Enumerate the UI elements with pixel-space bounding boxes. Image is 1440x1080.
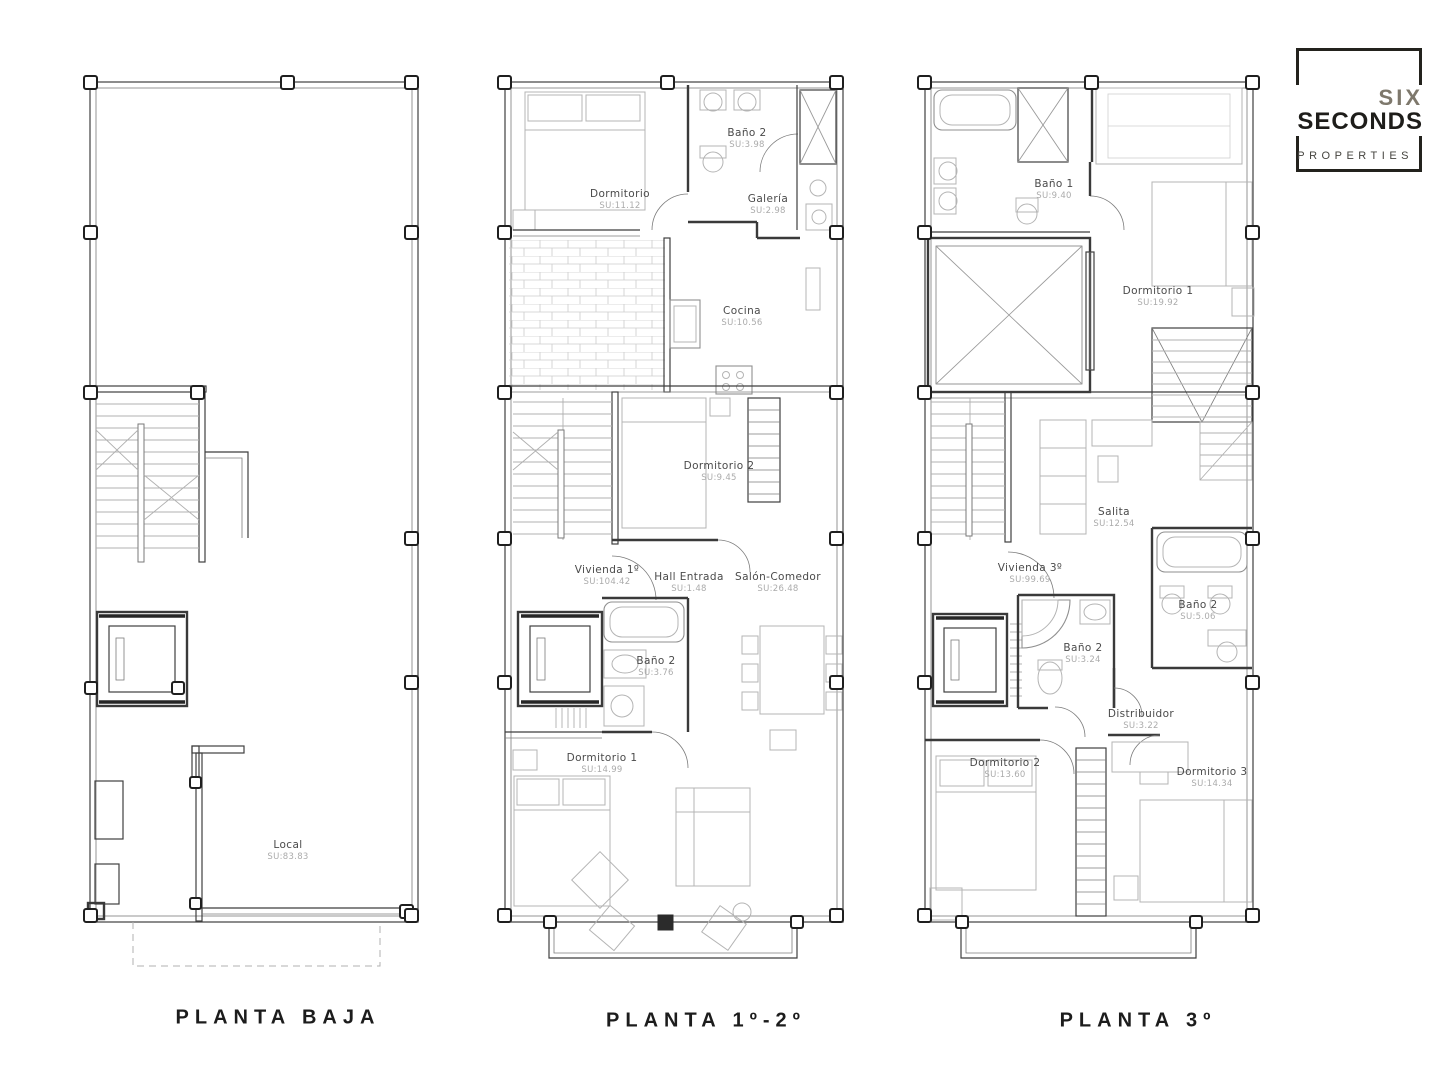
room-name: Dormitorio 2 <box>684 460 755 473</box>
room-label-bano2-top: Baño 2 SU:3.98 <box>727 127 766 151</box>
brand-wordmark: SIX SECONDS <box>1289 85 1425 136</box>
room-area: SU:83.83 <box>267 852 308 863</box>
room-label-vivienda1: Vivienda 1º SU:104.42 <box>575 564 640 588</box>
ground-dashed-outline <box>133 922 380 966</box>
room-label-dormitorio: Dormitorio SU:11.12 <box>590 188 650 212</box>
plan-1-2-drawing <box>498 76 843 958</box>
patio-crossed <box>928 238 1094 392</box>
wardrobe-ladder <box>1076 748 1106 916</box>
room-name: Baño 2 <box>636 655 675 668</box>
room-area: SU:12.54 <box>1093 519 1134 530</box>
room-name: Baño 2 <box>1178 599 1217 612</box>
room-name: Dormitorio <box>590 188 650 201</box>
room-name: Galería <box>748 193 788 206</box>
plan-title-baja: PLANTA BAJA <box>176 1007 381 1030</box>
elevator <box>933 614 1022 706</box>
staircase <box>931 392 1011 542</box>
bathroom-2-large <box>1152 528 1252 668</box>
room-label-distribuidor: Distribuidor SU:3.22 <box>1108 708 1174 732</box>
room-label-dormitorio2-mid: Dormitorio 2 SU:9.45 <box>684 460 755 484</box>
room-label-salita: Salita SU:12.54 <box>1093 506 1134 530</box>
wardrobe-ladder <box>748 398 780 502</box>
room-label-local: Local SU:83.83 <box>267 839 308 863</box>
room-area: SU:3.98 <box>727 140 766 151</box>
galeria-fixtures <box>806 180 832 230</box>
room-name: Salón-Comedor <box>735 571 821 584</box>
room-name: Cocina <box>721 305 762 318</box>
plan-title-1-2: PLANTA 1º-2º <box>606 1010 806 1033</box>
room-area: SU:99.69 <box>998 575 1063 586</box>
plan-3-drawing <box>918 76 1259 958</box>
room-area: SU:9.45 <box>684 473 755 484</box>
room-area: SU:11.12 <box>590 201 650 212</box>
room-label-salon-comedor: Salón-Comedor SU:26.48 <box>735 571 821 595</box>
room-name: Dormitorio 1 <box>1123 285 1194 298</box>
room-area: SU:9.40 <box>1034 191 1073 202</box>
room-label-bano2-mid: Baño 2 SU:3.76 <box>636 655 675 679</box>
shaft-crossed <box>800 90 836 164</box>
pillars <box>498 76 843 922</box>
room-area: SU:2.98 <box>748 206 788 217</box>
room-area: SU:1.48 <box>654 584 724 595</box>
room-area: SU:5.06 <box>1178 612 1217 623</box>
room-name: Hall Entrada <box>654 571 724 584</box>
room-area: SU:14.34 <box>1177 779 1248 790</box>
wardrobe <box>1096 88 1242 164</box>
room-name: Salita <box>1093 506 1134 519</box>
bathroom-1-fixtures <box>934 90 1038 224</box>
room-label-dormitorio1-right: Dormitorio 1 SU:19.92 <box>1123 285 1194 309</box>
room-label-bano2-large: Baño 2 SU:5.06 <box>1178 599 1217 623</box>
room-label-cocina: Cocina SU:10.56 <box>721 305 762 329</box>
bathroom-lower <box>602 598 688 768</box>
plan-title-3: PLANTA 3º <box>1060 1010 1217 1033</box>
room-label-dormitorio1-mid: Dormitorio 1 SU:14.99 <box>567 752 638 776</box>
private-stair <box>1152 328 1252 480</box>
living-room-furniture <box>572 626 842 951</box>
room-name: Dormitorio 1 <box>567 752 638 765</box>
room-name: Dormitorio 3 <box>1177 766 1248 779</box>
room-area: SU:3.76 <box>636 668 675 679</box>
tiled-terrace <box>509 240 665 390</box>
brand-line-properties: PROPERTIES <box>1297 150 1413 162</box>
room-name: Vivienda 3º <box>998 562 1063 575</box>
room-label-galeria: Galería SU:2.98 <box>748 193 788 217</box>
room-label-bano1: Baño 1 SU:9.40 <box>1034 178 1073 202</box>
staircase <box>513 392 618 544</box>
pillars <box>84 76 418 922</box>
room-area: SU:104.42 <box>575 577 640 588</box>
room-name: Baño 1 <box>1034 178 1073 191</box>
room-area: SU:10.56 <box>721 318 762 329</box>
brand-logo: SIX SECONDS PROPERTIES <box>1296 48 1422 172</box>
elevator <box>518 612 602 728</box>
shaft-crossed <box>1018 88 1068 162</box>
room-label-dormitorio2-right: Dormitorio 2 SU:13.60 <box>970 757 1041 781</box>
room-name: Dormitorio 2 <box>970 757 1041 770</box>
plan-baja-drawing <box>84 76 418 966</box>
floorplan-sheet: Local SU:83.83 Dormitorio SU:11.12 Baño … <box>0 0 1440 1080</box>
room-label-bano2-small: Baño 2 SU:3.24 <box>1063 642 1102 666</box>
room-label-vivienda3: Vivienda 3º SU:99.69 <box>998 562 1063 586</box>
staircase <box>90 386 248 562</box>
brand-line-six: SIX <box>1297 86 1423 109</box>
room-name: Vivienda 1º <box>575 564 640 577</box>
room-name: Local <box>267 839 308 852</box>
room-area: SU:13.60 <box>970 770 1041 781</box>
room-area: SU:26.48 <box>735 584 821 595</box>
room-label-dormitorio3: Dormitorio 3 SU:14.34 <box>1177 766 1248 790</box>
kitchen-fixtures <box>670 268 820 394</box>
room-area: SU:3.22 <box>1108 721 1174 732</box>
room-name: Baño 2 <box>727 127 766 140</box>
bathroom-2-small <box>1018 595 1114 737</box>
room-label-hall-entrada: Hall Entrada SU:1.48 <box>654 571 724 595</box>
room-name: Baño 2 <box>1063 642 1102 655</box>
room-area: SU:19.92 <box>1123 298 1194 309</box>
room-area: SU:14.99 <box>567 765 638 776</box>
room-name: Distribuidor <box>1108 708 1174 721</box>
brand-line-seconds: SECONDS <box>1297 109 1423 134</box>
room-area: SU:3.24 <box>1063 655 1102 666</box>
floorplan-linework <box>0 0 1440 1080</box>
